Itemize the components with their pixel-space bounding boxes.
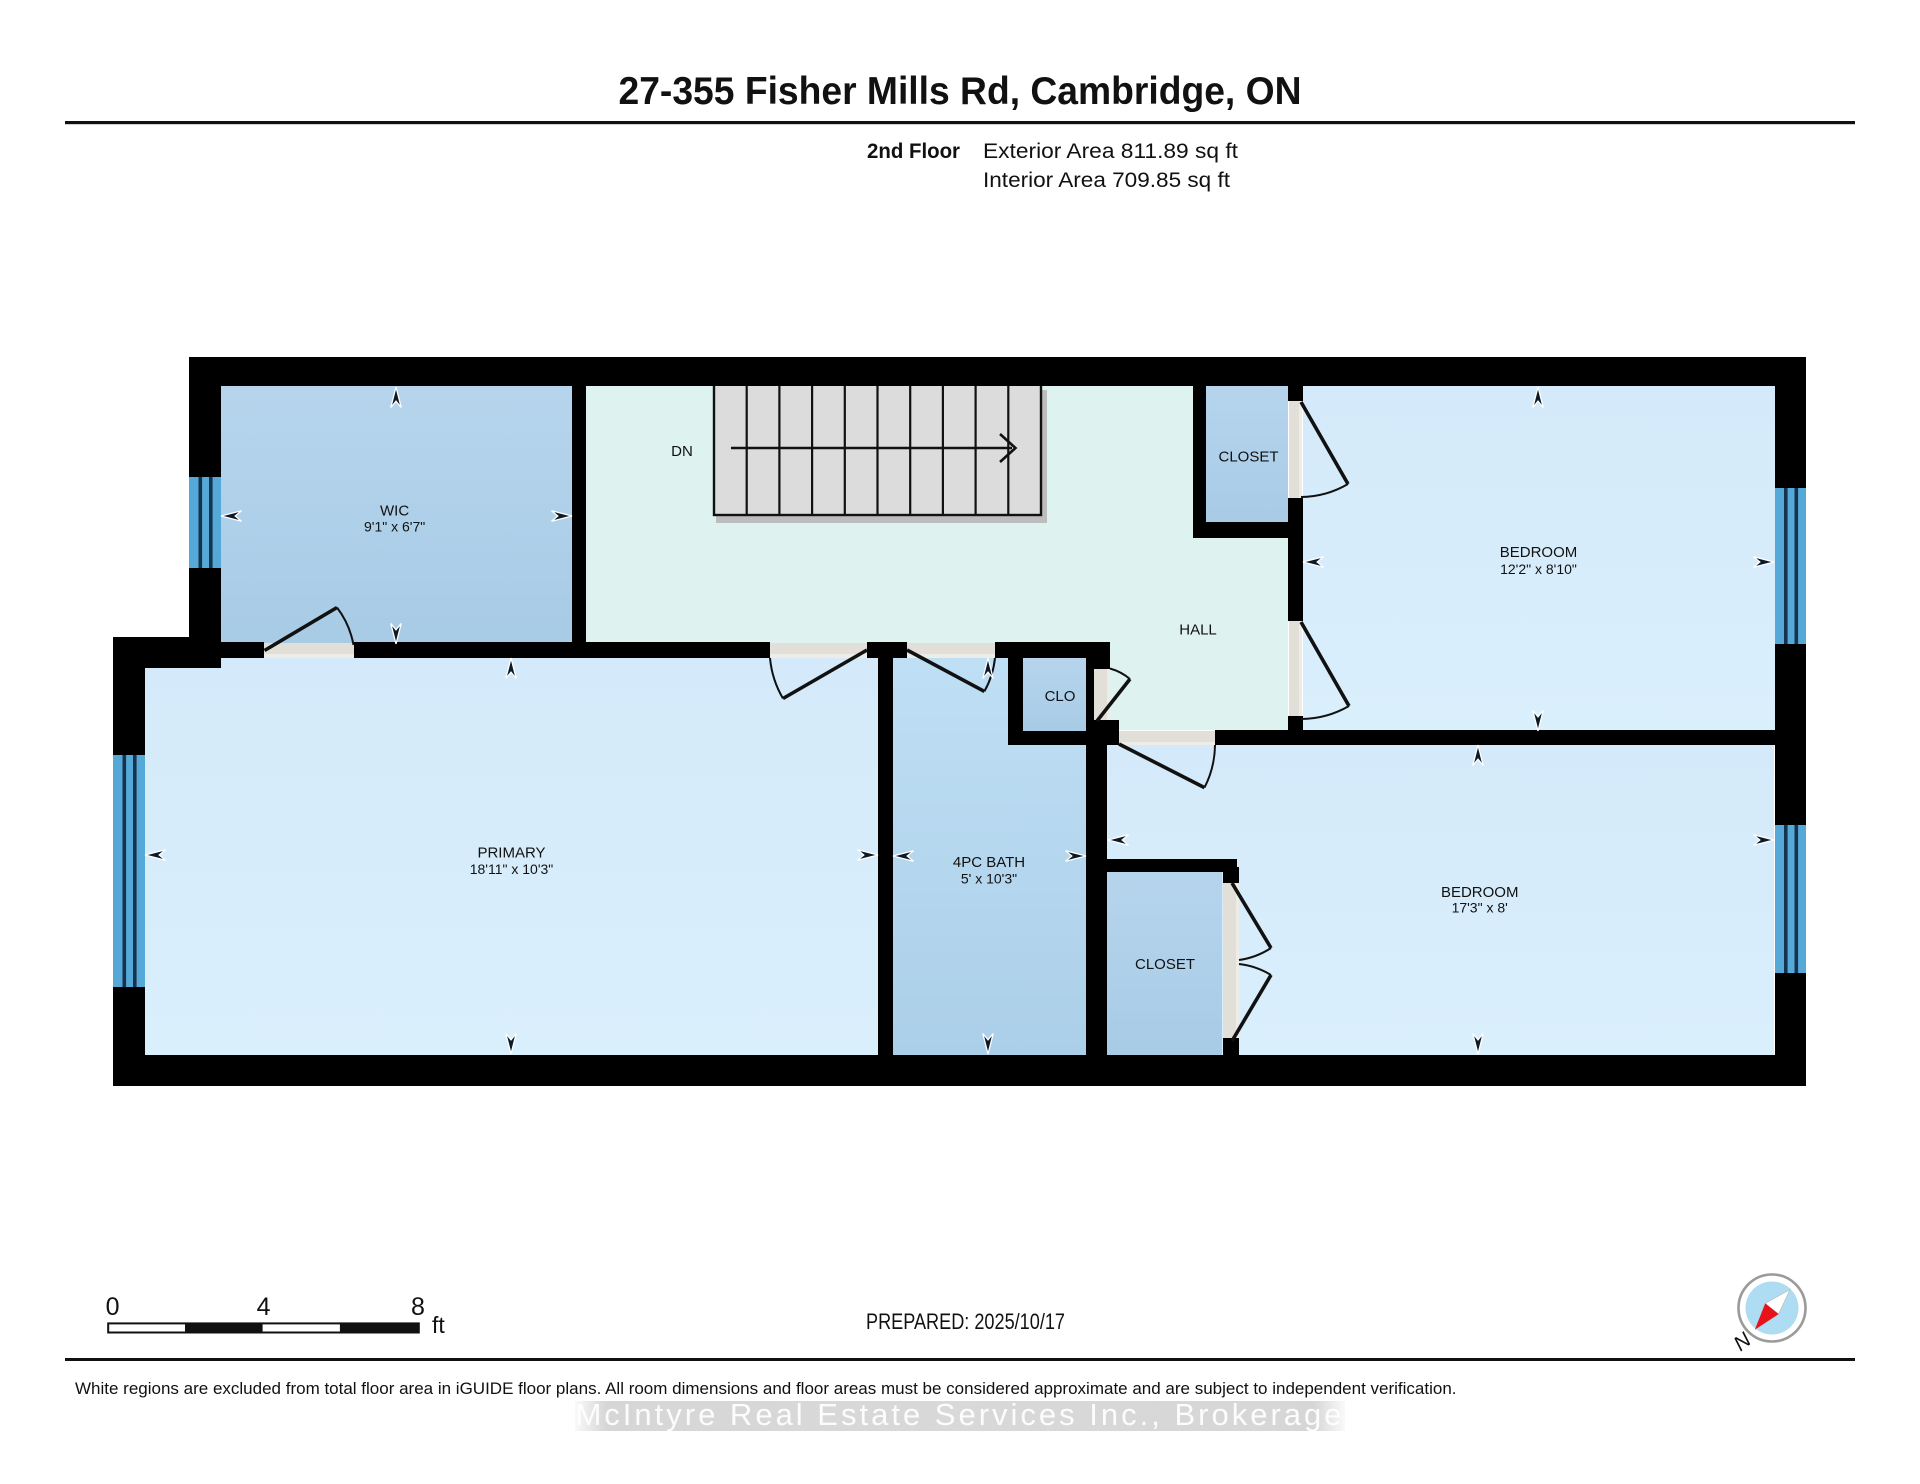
svg-text:Exterior Area 811.89 sq ft: Exterior Area 811.89 sq ft <box>983 139 1238 163</box>
svg-text:DN: DN <box>671 443 693 460</box>
svg-text:BEDROOM: BEDROOM <box>1500 544 1578 561</box>
svg-text:2nd Floor: 2nd Floor <box>867 139 961 163</box>
svg-text:8: 8 <box>411 1293 425 1321</box>
svg-text:CLO: CLO <box>1045 688 1076 705</box>
svg-text:CLOSET: CLOSET <box>1218 449 1278 466</box>
svg-text:BEDROOM: BEDROOM <box>1441 884 1519 901</box>
svg-text:CLOSET: CLOSET <box>1135 956 1195 973</box>
svg-text:WIC: WIC <box>380 503 409 520</box>
svg-text:Interior Area 709.85 sq ft: Interior Area 709.85 sq ft <box>983 168 1230 192</box>
svg-text:17'3" x 8': 17'3" x 8' <box>1452 899 1508 915</box>
svg-text:9'1" x 6'7": 9'1" x 6'7" <box>364 519 425 535</box>
svg-text:0: 0 <box>106 1293 120 1321</box>
svg-text:HALL: HALL <box>1179 622 1217 639</box>
svg-text:ft: ft <box>432 1312 445 1338</box>
svg-text:PREPARED: 2025/10/17: PREPARED: 2025/10/17 <box>866 1309 1065 1334</box>
svg-text:5' x 10'3": 5' x 10'3" <box>961 871 1017 887</box>
svg-text:McIntyre Real Estate Services: McIntyre Real Estate Services Inc., Brok… <box>575 1397 1344 1432</box>
svg-text:PRIMARY: PRIMARY <box>477 845 545 862</box>
svg-text:27-355 Fisher Mills Rd, Cambri: 27-355 Fisher Mills Rd, Cambridge, ON <box>619 70 1302 113</box>
svg-text:18'11" x 10'3": 18'11" x 10'3" <box>470 861 554 877</box>
svg-text:12'2" x 8'10": 12'2" x 8'10" <box>1500 561 1577 577</box>
svg-text:4: 4 <box>257 1293 271 1321</box>
svg-text:4PC BATH: 4PC BATH <box>953 854 1025 871</box>
svg-text:White regions are excluded fro: White regions are excluded from total fl… <box>75 1379 1457 1398</box>
